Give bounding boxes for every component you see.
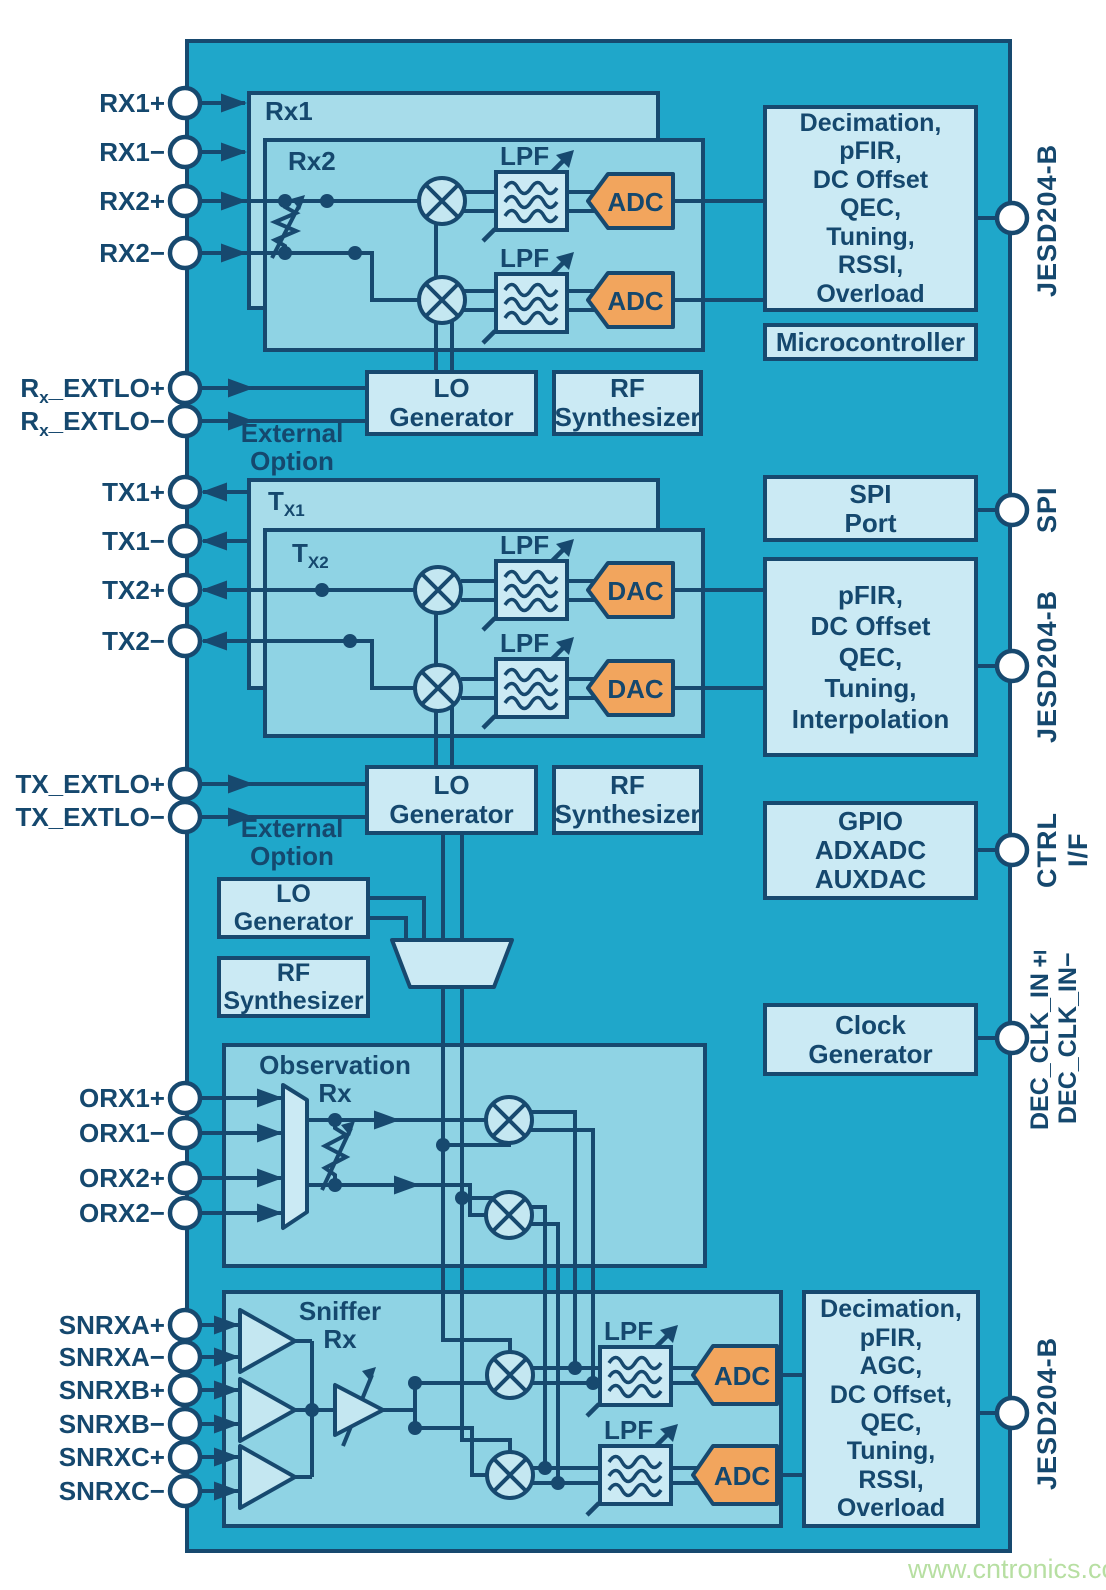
mixer-icon: [487, 1352, 533, 1398]
pin-label-jesd204b-tx: JESD204-B: [1032, 586, 1062, 746]
pin-circle: [997, 1398, 1027, 1428]
mixer-icon: [415, 567, 461, 613]
gpio-box: GPIOADXADCAUXDAC: [763, 801, 978, 900]
junction-dot: [538, 1461, 552, 1475]
junction-dot: [408, 1376, 422, 1390]
pin-circle: [170, 1476, 200, 1506]
pin-label-jesd204b-rx: JESD204-B: [1032, 140, 1062, 300]
pin-circle: [997, 203, 1027, 233]
amp-icon: [240, 1446, 295, 1508]
rx2-title: Rx2: [288, 146, 336, 177]
rx-lo-generator-box: LOGenerator: [365, 370, 538, 436]
junction-dot: [436, 1138, 450, 1152]
pin-label-dec-clk-in-p: DEC_CLK_IN±: [1026, 940, 1054, 1136]
pin-label-orx1p: ORX1+: [0, 1082, 165, 1114]
pin-circle: [170, 1310, 200, 1340]
pin-label-snrxc-n: SNRXC−: [0, 1475, 165, 1507]
variable-gain-amp-icon: [335, 1385, 383, 1435]
junction-dot: [278, 194, 292, 208]
pin-label-orx2p: ORX2+: [0, 1162, 165, 1194]
pin-label-ctrl-if: CTRL I/F: [1032, 793, 1062, 907]
sniffer-dsp-box: Decimation,pFIR, AGC,DC Offset, QEC,Tuni…: [802, 1290, 980, 1528]
dac-label: DAC: [598, 576, 673, 607]
tx-lo-generator-box: LOGenerator: [365, 765, 538, 835]
pin-circle: [170, 186, 200, 216]
pin-circle: [170, 477, 200, 507]
spi-port-box: SPIPort: [763, 475, 978, 542]
lpf-label: LPF: [604, 1415, 653, 1446]
amp-icon: [240, 1379, 295, 1441]
rx-dsp-box: Decimation,pFIR, DC OffsetQEC, Tuning,RS…: [763, 105, 978, 312]
lpf-tune-arrow-lines: [483, 156, 672, 1515]
pin-label-rx1n: RX1−: [0, 136, 165, 168]
junction-dot: [305, 1403, 319, 1417]
pin-label-snrxa-p: SNRXA+: [0, 1309, 165, 1341]
pin-circle: [170, 1118, 200, 1148]
junction-dot: [348, 246, 362, 260]
pin-label-rx-extlo-n: Rx_EXTLO−: [0, 405, 165, 447]
dac-label: DAC: [598, 674, 673, 705]
pin-circle: [170, 1163, 200, 1193]
junction-dot: [568, 1361, 582, 1375]
mixer-icon: [486, 1097, 532, 1143]
lpf-label: LPF: [604, 1316, 653, 1347]
pin-circle: [170, 1342, 200, 1372]
pin-circle: [170, 373, 200, 403]
pin-circle: [170, 575, 200, 605]
pin-circle: [170, 238, 200, 268]
lo-mux-shape: [392, 940, 512, 987]
junction-dot: [408, 1421, 422, 1435]
pin-label-jesd204b-sniffer: JESD204-B: [1032, 1333, 1062, 1493]
tx-rf-synthesizer-box: RFSynthesizer: [552, 765, 703, 835]
pin-circle: [170, 626, 200, 656]
pin-circle: [997, 835, 1027, 865]
junction-dot: [315, 583, 329, 597]
junction-dot: [455, 1191, 469, 1205]
mixer-icon: [487, 1452, 533, 1498]
observation-rx-title: ObservationRx: [245, 1051, 425, 1107]
aux-rf-synthesizer-box: RFSynthesizer: [217, 956, 370, 1018]
pin-label-tx-extlo-p: TX_EXTLO+: [0, 768, 165, 800]
pin-label-rx2n: RX2−: [0, 237, 165, 269]
pin-circle: [997, 495, 1027, 525]
pin-circle: [170, 769, 200, 799]
aux-lo-generator-box: LOGenerator: [217, 877, 370, 939]
junction-dot: [586, 1376, 600, 1390]
microcontroller-box: Microcontroller: [763, 323, 978, 361]
watermark: www.cntronics.com: [908, 1554, 1106, 1585]
adc-label: ADC: [706, 1461, 778, 1492]
misc-wires: [978, 850, 998, 1038]
pin-circle: [997, 651, 1027, 681]
junction-dot: [343, 634, 357, 648]
pin-label-orx1n: ORX1−: [0, 1117, 165, 1149]
pin-label-orx2n: ORX2−: [0, 1197, 165, 1229]
pin-label-snrxc-p: SNRXC+: [0, 1441, 165, 1473]
tx2-title: TX2: [292, 538, 329, 573]
pin-label-tx2n: TX2−: [0, 625, 165, 657]
pin-circle: [170, 137, 200, 167]
lpf-label: LPF: [500, 141, 549, 172]
pin-circle: [170, 1198, 200, 1228]
junction-dot: [320, 194, 334, 208]
pin-label-tx1n: TX1−: [0, 525, 165, 557]
tx1-title: TX1: [268, 486, 305, 521]
pin-circle: [997, 1023, 1027, 1053]
tx-dsp-box: pFIR, DC Offset QEC, Tuning, Interpolati…: [763, 557, 978, 757]
pin-circle: [170, 1083, 200, 1113]
pin-label-tx2p: TX2+: [0, 574, 165, 606]
external-option-label: ExternalOption: [232, 814, 352, 870]
pin-circle: [170, 1409, 200, 1439]
mixer-icon: [415, 665, 461, 711]
pin-label-spi: SPI: [1032, 478, 1062, 542]
rx-rf-synthesizer-box: RFSynthesizer: [552, 370, 703, 436]
lpf-label: LPF: [500, 243, 549, 274]
junction-dot: [278, 246, 292, 260]
junction-dot: [551, 1476, 565, 1490]
pin-label-rx1p: RX1+: [0, 87, 165, 119]
pin-label-snrxb-n: SNRXB−: [0, 1408, 165, 1440]
pin-circle: [170, 406, 200, 436]
external-option-label: ExternalOption: [232, 419, 352, 475]
pin-label-snrxa-n: SNRXA−: [0, 1341, 165, 1373]
pin-label-tx1p: TX1+: [0, 476, 165, 508]
transceiver-block-diagram: Rx1 Rx2 TX1 TX2 ObservationRx SnifferRx: [0, 0, 1106, 1590]
pin-label-tx-extlo-n: TX_EXTLO−: [0, 801, 165, 833]
lpf-label: LPF: [500, 530, 549, 561]
mixer-icon: [419, 178, 465, 224]
junction-dot: [328, 1113, 342, 1127]
pin-circle: [170, 526, 200, 556]
adc-label: ADC: [598, 286, 673, 317]
junction-dot: [328, 1178, 342, 1192]
lpf-label: LPF: [500, 628, 549, 659]
pin-circle: [170, 802, 200, 832]
pin-circle: [170, 88, 200, 118]
pin-label-snrxb-p: SNRXB+: [0, 1374, 165, 1406]
pin-circle: [170, 1375, 200, 1405]
adc-label: ADC: [706, 1361, 778, 1392]
mixer-icon: [419, 277, 465, 323]
adc-label: ADC: [598, 187, 673, 218]
mixer-icon: [486, 1192, 532, 1238]
pin-circle: [170, 1442, 200, 1472]
rx1-title: Rx1: [265, 96, 313, 127]
clock-generator-box: ClockGenerator: [763, 1003, 978, 1076]
pin-label-rx2p: RX2+: [0, 185, 165, 217]
sniffer-rx-title: SnifferRx: [270, 1297, 410, 1353]
pin-label-dec-clk-in-n: DEC_CLK_IN−: [1054, 940, 1082, 1136]
